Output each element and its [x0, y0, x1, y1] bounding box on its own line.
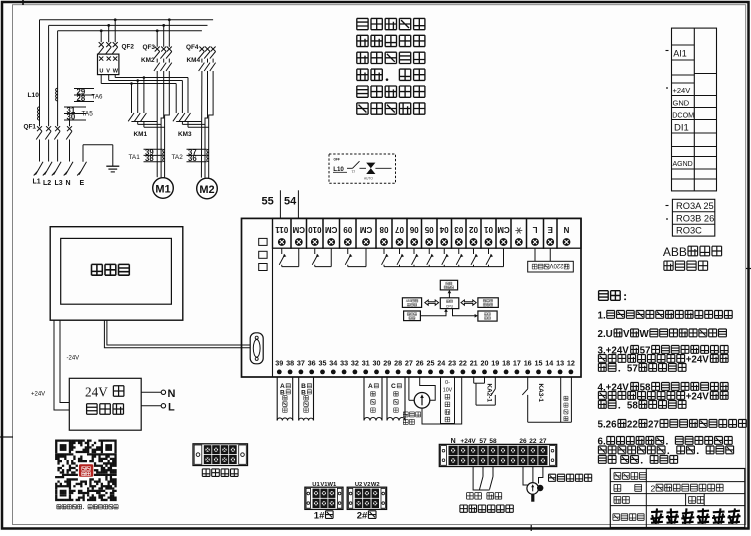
svg-text:02: 02: [469, 225, 478, 234]
svg-text:RO3C: RO3C: [676, 226, 702, 236]
svg-text:28: 28: [394, 358, 402, 367]
svg-text:26: 26: [519, 438, 527, 445]
svg-text:03: 03: [454, 225, 463, 234]
svg-text:04: 04: [439, 225, 448, 234]
svg-text:U2: U2: [355, 482, 362, 488]
svg-text:TA1: TA1: [129, 154, 141, 161]
svg-text:N: N: [563, 225, 569, 234]
svg-text:010: 010: [308, 225, 322, 234]
svg-text:15: 15: [535, 358, 543, 367]
svg-text:W: W: [640, 329, 650, 340]
svg-text:QF2: QF2: [122, 44, 135, 51]
svg-text:RO3B 26: RO3B 26: [676, 213, 714, 223]
svg-text:ABB: ABB: [663, 245, 687, 259]
svg-text:C: C: [391, 383, 396, 390]
svg-text:V: V: [623, 329, 630, 340]
svg-text:12: 12: [567, 358, 575, 367]
svg-text:U: U: [99, 69, 103, 75]
svg-text:N: N: [66, 180, 71, 187]
svg-text:QF3: QF3: [143, 44, 156, 51]
svg-text:+24V: +24V: [673, 86, 691, 95]
svg-text:TA5: TA5: [82, 111, 94, 118]
svg-text:27: 27: [405, 358, 413, 367]
svg-text:1#: 1#: [314, 511, 325, 522]
svg-text:V2: V2: [363, 482, 370, 488]
svg-text:5.26: 5.26: [598, 420, 618, 431]
svg-text:KM3: KM3: [178, 131, 192, 138]
svg-text:27: 27: [539, 438, 547, 445]
svg-text:QF4: QF4: [186, 44, 199, 51]
svg-text:W1: W1: [328, 482, 337, 488]
svg-text:L10: L10: [28, 92, 40, 99]
svg-text:10V: 10V: [443, 388, 453, 394]
svg-text:28: 28: [77, 94, 86, 103]
svg-text:39: 39: [275, 358, 283, 367]
svg-text:34: 34: [329, 358, 337, 367]
svg-text:77: 77: [352, 170, 356, 174]
svg-text:485: 485: [406, 299, 412, 303]
svg-text:55: 55: [262, 196, 274, 208]
svg-text:-24V: -24V: [67, 356, 80, 362]
svg-text:GND: GND: [673, 98, 690, 107]
svg-text:57: 57: [627, 364, 638, 375]
svg-text:30: 30: [373, 358, 381, 367]
svg-text:06: 06: [409, 225, 418, 234]
svg-text:24V: 24V: [85, 385, 108, 400]
svg-text:KM2: KM2: [141, 57, 155, 64]
svg-text:L3: L3: [55, 180, 63, 187]
svg-text:54: 54: [284, 196, 297, 208]
svg-text:B: B: [301, 389, 306, 396]
svg-text:+24V: +24V: [686, 392, 710, 403]
svg-text:22: 22: [459, 358, 467, 367]
svg-text:0-: 0-: [445, 380, 450, 386]
svg-text:E: E: [80, 180, 85, 187]
svg-text:31: 31: [362, 358, 370, 367]
svg-text:29: 29: [383, 358, 391, 367]
svg-text:18: 18: [502, 358, 510, 367]
svg-text:26: 26: [416, 358, 424, 367]
svg-text:58: 58: [489, 438, 497, 445]
svg-text:V: V: [106, 69, 110, 75]
svg-text:CM: CM: [359, 225, 372, 234]
svg-text:L1: L1: [33, 179, 41, 186]
svg-text:AGND: AGND: [673, 161, 693, 168]
svg-text:U1: U1: [312, 482, 320, 488]
svg-text:+24V: +24V: [686, 355, 710, 366]
svg-text:L: L: [168, 401, 175, 413]
svg-text:RO3A 25: RO3A 25: [676, 201, 714, 211]
svg-text:38: 38: [286, 358, 294, 367]
svg-text:22: 22: [627, 420, 638, 431]
svg-text:30: 30: [67, 112, 76, 121]
svg-text:OFF: OFF: [334, 158, 340, 162]
svg-text:05: 05: [424, 225, 433, 234]
svg-text:2.U: 2.U: [598, 329, 613, 340]
svg-text:QF1: QF1: [24, 124, 37, 131]
svg-text:09: 09: [343, 225, 352, 234]
svg-text:07: 07: [395, 225, 404, 234]
svg-text:A: A: [368, 383, 373, 390]
svg-text:+24V: +24V: [460, 438, 476, 445]
svg-text:14: 14: [545, 358, 553, 367]
svg-text:L: L: [532, 225, 537, 234]
svg-text:DI1: DI1: [674, 123, 689, 134]
svg-text:N: N: [168, 388, 176, 400]
svg-text:17: 17: [513, 358, 521, 367]
svg-text:B: B: [280, 389, 285, 396]
svg-text:38: 38: [145, 154, 154, 163]
svg-text:32: 32: [351, 358, 359, 367]
svg-text:20: 20: [481, 358, 489, 367]
svg-text:M2: M2: [199, 184, 214, 196]
svg-text:13: 13: [556, 358, 564, 367]
svg-text:220V: 220V: [549, 262, 563, 268]
svg-text:N: N: [451, 438, 456, 445]
svg-text:CM: CM: [497, 225, 510, 234]
svg-text:25: 25: [427, 358, 435, 367]
svg-text:08: 08: [379, 225, 388, 234]
svg-text:36: 36: [308, 358, 316, 367]
svg-text:TA6: TA6: [92, 93, 103, 100]
svg-text:27: 27: [648, 420, 659, 431]
svg-text:W2: W2: [371, 482, 380, 488]
svg-text:16: 16: [524, 358, 532, 367]
svg-text:CM: CM: [325, 225, 338, 234]
svg-text:33: 33: [340, 358, 348, 367]
svg-text:DCOM: DCOM: [672, 110, 694, 119]
svg-text:011: 011: [275, 225, 288, 234]
svg-text:1.: 1.: [598, 311, 606, 322]
svg-text:2#: 2#: [357, 511, 368, 522]
svg-text:E: E: [547, 225, 553, 234]
svg-text:+24V: +24V: [31, 392, 45, 398]
svg-text:19: 19: [491, 358, 499, 367]
svg-text:AUTO: AUTO: [364, 177, 373, 181]
svg-text:01: 01: [484, 225, 493, 234]
svg-text:CPU: CPU: [446, 304, 454, 308]
svg-text:37: 37: [297, 358, 305, 367]
svg-text:TA2: TA2: [172, 154, 184, 161]
svg-text:L2: L2: [43, 180, 51, 187]
svg-text:L10: L10: [333, 166, 344, 173]
svg-text:21: 21: [470, 358, 478, 367]
svg-text:AI1: AI1: [673, 49, 687, 59]
svg-text:KM1: KM1: [134, 131, 148, 138]
svg-text:CM: CM: [292, 225, 305, 234]
svg-text:2: 2: [651, 483, 656, 493]
svg-text:23: 23: [448, 358, 456, 367]
svg-text:36: 36: [188, 154, 197, 163]
svg-text:KM4: KM4: [187, 57, 201, 64]
svg-text:24: 24: [437, 358, 445, 367]
svg-text:22: 22: [529, 438, 537, 445]
svg-text:KA3-1: KA3-1: [537, 384, 544, 403]
svg-text:57: 57: [479, 438, 487, 445]
svg-text:M1: M1: [155, 183, 170, 195]
svg-text:KA2-1: KA2-1: [485, 384, 492, 403]
svg-text:58: 58: [627, 401, 638, 412]
svg-text:W: W: [113, 69, 119, 75]
svg-text:35: 35: [319, 358, 327, 367]
